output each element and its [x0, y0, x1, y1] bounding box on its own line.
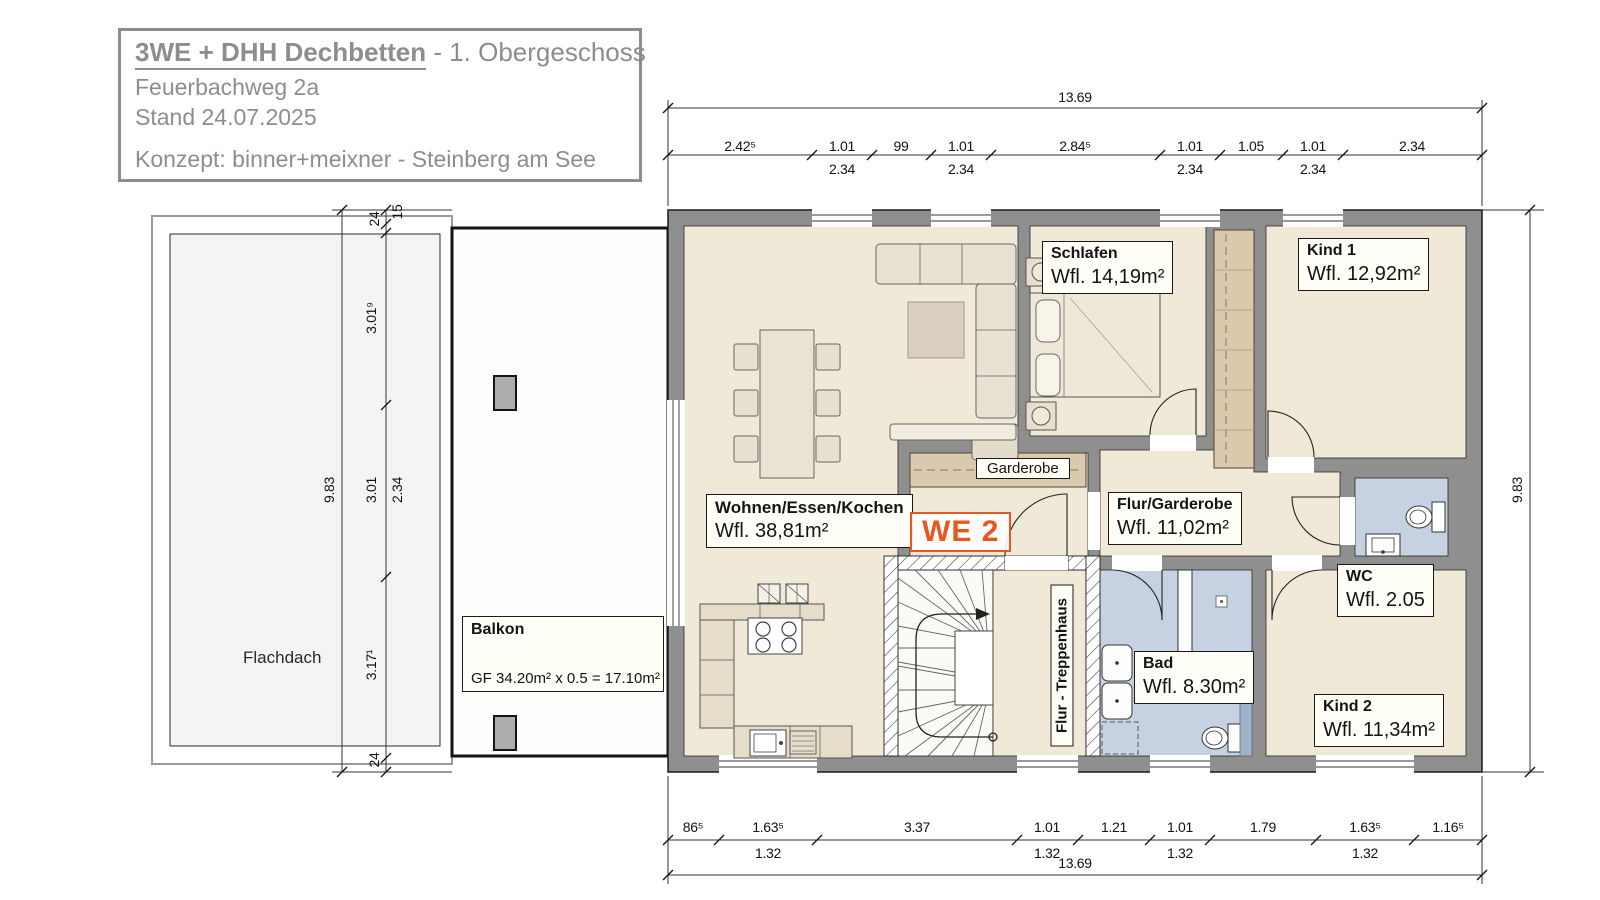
dim-top-2: 1.01 — [829, 139, 855, 153]
floor-drain — [1216, 596, 1227, 607]
dim-left-4: 3.01 — [364, 477, 378, 503]
flachdach-area — [152, 216, 452, 764]
window — [931, 209, 991, 227]
wardrobe-divider — [1214, 230, 1254, 468]
window — [1283, 209, 1343, 227]
balcony-post — [494, 376, 516, 410]
title-block: 3WE + DHH Dechbetten - 1. Obergeschoss F… — [118, 28, 642, 182]
balcony-post — [494, 716, 516, 750]
dim-bottom-2: 1.63⁵ — [752, 820, 784, 834]
flachdach-label: Flachdach — [243, 648, 321, 668]
garderobe-label: Garderobe — [976, 458, 1070, 479]
dim-bottom-sub-2: 1.32 — [1034, 846, 1060, 860]
project-address: Feuerbachweg 2a — [135, 72, 625, 102]
shower-partition — [1240, 700, 1252, 756]
dim-top-8: 1.01 — [1300, 139, 1326, 153]
dim-bottom-5: 1.21 — [1101, 820, 1127, 834]
dim-bottom-sub-1: 1.32 — [755, 846, 781, 860]
floorplan-canvas: 3WE + DHH Dechbetten - 1. Obergeschoss F… — [0, 0, 1600, 900]
dim-top-6: 1.01 — [1177, 139, 1203, 153]
window — [1316, 755, 1414, 773]
dim-top-sub-3: 2.34 — [1177, 162, 1203, 176]
room-label-schlafen: Schlafen Wfl. 14,19m² — [1042, 241, 1173, 294]
dim-left-3: 3.01⁹ — [364, 302, 378, 334]
dim-left-6: 3.17¹ — [364, 650, 378, 680]
cooktop — [748, 618, 802, 654]
stair-landing — [955, 631, 993, 705]
plan-status: Stand 24.07.2025 — [135, 102, 625, 132]
dim-left-2: 15 — [390, 205, 404, 220]
window — [1160, 209, 1220, 227]
bad-partition-wall — [1178, 570, 1192, 662]
room-label-kind2: Kind 2 Wfl. 11,34m² — [1314, 694, 1444, 747]
stairs-label: Flur - Treppenhaus — [1051, 585, 1074, 747]
dim-top-9: 2.34 — [1399, 139, 1425, 153]
dim-left-7: 24 — [367, 753, 381, 768]
dim-left-5: 2.34 — [390, 477, 404, 503]
room-label-bad: Bad Wfl. 8.30m² — [1134, 651, 1254, 704]
room-label-wohnen: Wohnen/Essen/Kochen Wfl. 38,81m² — [706, 494, 913, 548]
dim-top-sub-4: 2.34 — [1300, 162, 1326, 176]
dim-bottom-1: 86⁵ — [683, 820, 703, 834]
dining-table — [760, 330, 814, 478]
balcony-door — [667, 400, 685, 626]
dim-bottom-3: 3.37 — [904, 820, 930, 834]
rug-coffee-table — [908, 302, 964, 358]
room-label-wc: WC Wfl. 2.05 — [1337, 564, 1434, 617]
concept-line: Konzept: binner+meixner - Steinberg am S… — [135, 146, 625, 173]
floor-name: - 1. Obergeschoss — [426, 37, 646, 67]
dim-top-5: 2.84⁵ — [1059, 139, 1091, 153]
dim-top-sub-1: 2.34 — [829, 162, 855, 176]
dim-right-total: 9.83 — [1510, 477, 1524, 503]
room-label-flur: Flur/Garderobe Wfl. 11,02m² — [1108, 492, 1242, 545]
sideboard — [890, 424, 1016, 440]
dim-top-1: 2.42⁵ — [724, 139, 756, 153]
dim-bottom-6: 1.01 — [1167, 820, 1193, 834]
balkon-label: Balkon GF 34.20m² x 0.5 = 17.10m² — [462, 616, 664, 692]
dim-top-7: 1.05 — [1238, 139, 1264, 153]
dim-top-4: 1.01 — [948, 139, 974, 153]
dim-bottom-sub-4: 1.32 — [1352, 846, 1378, 860]
project-title-line: 3WE + DHH Dechbetten - 1. Obergeschoss — [135, 37, 625, 68]
dim-top-total: 13.69 — [1058, 90, 1092, 104]
bad-toilet — [1202, 724, 1242, 752]
dim-top-3: 99 — [894, 139, 909, 153]
wc-sink — [1366, 534, 1400, 556]
dim-top-sub-2: 2.34 — [948, 162, 974, 176]
dim-left-1: 24 — [367, 212, 381, 227]
dim-bottom-8: 1.63⁵ — [1349, 820, 1381, 834]
project-name: 3WE + DHH Dechbetten — [135, 37, 426, 70]
room-label-kind1: Kind 1 Wfl. 12,92m² — [1298, 238, 1429, 291]
unit-we2-badge: WE 2 — [910, 512, 1011, 552]
dim-bottom-4: 1.01 — [1034, 820, 1060, 834]
dim-bottom-7: 1.79 — [1250, 820, 1276, 834]
dim-bottom-9: 1.16⁵ — [1432, 820, 1464, 834]
window — [1150, 755, 1210, 773]
dim-left-total: 9.83 — [322, 477, 336, 503]
window — [1017, 755, 1078, 773]
dim-bottom-sub-3: 1.32 — [1167, 846, 1193, 860]
dim-bottom-total: 13.69 — [1058, 856, 1092, 870]
window — [812, 209, 872, 227]
